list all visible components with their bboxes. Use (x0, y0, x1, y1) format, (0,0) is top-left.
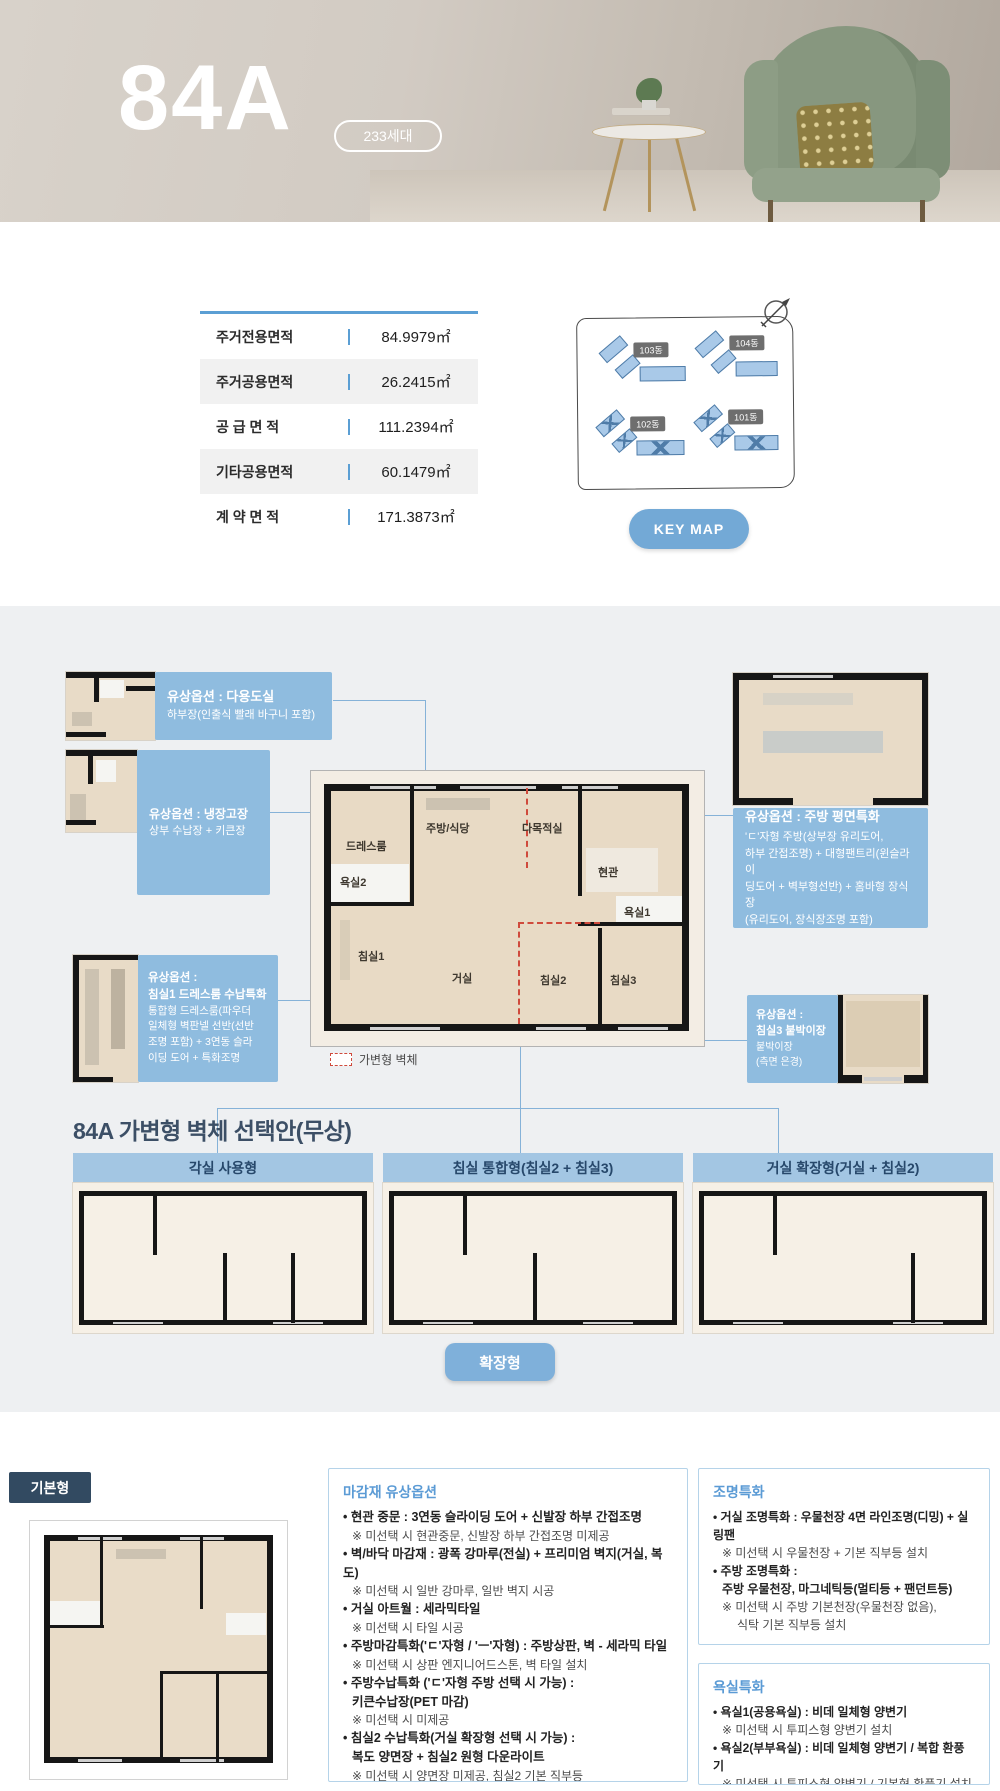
leader-line (703, 815, 733, 816)
table-leg (648, 136, 651, 212)
option-note: ※ 미선택 시 투피스형 양변기 설치 (713, 1721, 975, 1739)
leader-line (520, 1046, 521, 1108)
option-item: 벽/바닥 마감재 : 광폭 강마루(전실) + 프리미엄 벽지(거실, 복도) (343, 1545, 673, 1583)
dressroom-image (73, 955, 138, 1082)
utility-room-image (66, 672, 155, 740)
basic-type-floorplan (29, 1520, 288, 1780)
basic-type-badge: 기본형 (9, 1472, 91, 1503)
key-map-button[interactable]: KEY MAP (629, 509, 749, 549)
area-value: 26.2415㎡ (354, 371, 478, 392)
building-label: 103동 (633, 342, 668, 357)
divider (348, 329, 350, 345)
callout-utility-room: 유상옵션 : 다용도실 하부장(인출식 빨래 바구니 포함) (155, 672, 332, 740)
side-table-top (592, 124, 706, 140)
callout-line: 통합형 드레스룸(파우더 (148, 1004, 268, 1020)
callout-line: 이딩 도어 + 특화조명 (148, 1051, 268, 1067)
pattern-pillow (796, 102, 875, 177)
building-shape (709, 423, 735, 448)
callout-line: 일체형 벽판넬 선반(선반 (148, 1019, 268, 1035)
option-note: ※ 미선택 시 양면장 미제공, 침실2 기본 직부등 (343, 1767, 673, 1782)
divider (348, 374, 350, 390)
building-label: 104동 (729, 335, 764, 350)
kitchen-option-image (733, 673, 928, 805)
callout-line: 딩도어 + 벽부형선반) + 홈바형 장식장 (745, 879, 916, 912)
room-label-entry: 현관 (598, 864, 618, 880)
option-item: 복도 양면장 + 침실2 원형 다운라이트 (343, 1748, 673, 1767)
option-note: ※ 미선택 시 현관중문, 신발장 하부 간접조명 미제공 (343, 1527, 673, 1545)
area-label: 계 약 면 적 (200, 507, 344, 527)
variant-card-merged-bedrooms: 침실 통합형(침실2 + 침실3) (383, 1153, 683, 1333)
bed3-wardrobe-image (838, 995, 928, 1083)
leader-line (333, 700, 425, 701)
leader-line (703, 1040, 747, 1041)
option-note: ※ 미선택 시 미제공 (343, 1711, 673, 1729)
flexible-wall-mark (518, 922, 600, 924)
room-label-kitchen: 주방/식당 (426, 820, 470, 836)
building-cluster: 101동 (694, 409, 791, 462)
option-note: ※ 미선택 시 일반 강마루, 일반 벽지 시공 (343, 1582, 673, 1600)
option-item: 주방 우물천장, 마그네틱등(멀티등 + 팬던트등) (713, 1580, 975, 1598)
option-item: 욕실2(부부욕실) : 비데 일체형 양변기 / 복합 환풍기 (713, 1739, 975, 1775)
box-title: 조명특화 (713, 1482, 975, 1502)
box-title: 마감재 유상옵션 (343, 1482, 673, 1502)
callout-bed3-wardrobe: 유상옵션 : 침실3 붙박이장 붙박이장 (측면 은경) (747, 995, 838, 1083)
option-item: 키큰수납장(PET 마감) (343, 1693, 673, 1712)
leader-line (425, 700, 426, 772)
building-shape (736, 361, 778, 376)
option-item: 거실 조명특화 : 우물천장 4면 라인조명(디밍) + 실링팬 (713, 1508, 975, 1544)
divider (348, 464, 350, 480)
box-title: 욕실특화 (713, 1677, 975, 1697)
callout-title: 유상옵션 : 주방 평면특화 (745, 808, 916, 827)
callout-line: 하부 간접조명) + 대형팬트리(윈슬라이 (745, 846, 916, 879)
option-item: 욕실1(공용욕실) : 비데 일체형 양변기 (713, 1703, 975, 1721)
option-note: ※ 미선택 시 타일 시공 (343, 1619, 673, 1637)
legend-label: 가변형 벽체 (359, 1051, 418, 1068)
leader-line (520, 1108, 521, 1153)
callout-kitchen: 유상옵션 : 주방 평면특화 'ㄷ'자형 주방(상부장 유리도어, 하부 간접조… (733, 808, 928, 928)
building-shape (615, 354, 641, 379)
variant-card-header: 거실 확장형(거실 + 침실2) (693, 1153, 993, 1183)
expanded-type-button[interactable]: 확장형 (445, 1343, 555, 1381)
area-value: 111.2394㎡ (354, 416, 478, 437)
key-map: 103동 104동 102동 101동 (576, 316, 795, 490)
compass-icon (756, 292, 796, 332)
divider (348, 419, 350, 435)
finish-options-box: 마감재 유상옵션 현관 중문 : 3연동 슬라이딩 도어 + 신발장 하부 간접… (328, 1468, 688, 1782)
room-label-bed1: 침실1 (358, 948, 384, 964)
flexible-wall-legend: 가변형 벽체 (330, 1051, 418, 1068)
building-cluster: 104동 (695, 335, 792, 388)
callout-line: (유리도어, 장식장조명 포함) (745, 912, 916, 929)
fridge-cabinet-image (66, 750, 137, 832)
divider (348, 509, 350, 525)
variant-plan-image (693, 1183, 993, 1333)
chair-wing (916, 60, 950, 180)
table-row: 계 약 면 적 171.3873㎡ (200, 494, 478, 539)
area-label: 주거공용면적 (200, 372, 344, 392)
chair-leg (920, 200, 925, 222)
lighting-options-box: 조명특화 거실 조명특화 : 우물천장 4면 라인조명(디밍) + 실링팬 ※ … (698, 1468, 990, 1645)
option-item: 거실 아트월 : 세라믹타일 (343, 1600, 673, 1619)
variant-card-header: 각실 사용형 (73, 1153, 373, 1183)
variant-plan-image (73, 1183, 373, 1333)
room-label-bath2: 욕실2 (340, 874, 366, 890)
building-shape (599, 335, 629, 363)
area-label: 기타공용면적 (200, 462, 344, 482)
household-count-badge: 233세대 (334, 120, 442, 152)
leader-line (217, 1108, 778, 1109)
building-shape (636, 440, 684, 456)
table-row: 공 급 면 적 111.2394㎡ (200, 404, 478, 449)
option-note: ※ 미선택 시 상판 엔지니어드스톤, 벽 타일 설치 (343, 1656, 673, 1674)
callout-line: 조명 포함) + 3연동 슬라 (148, 1035, 268, 1051)
building-cluster: 102동 (596, 414, 693, 467)
callout-line: (측면 은경) (756, 1055, 829, 1070)
callout-title: 유상옵션 : 다용도실 (167, 688, 320, 707)
variant-plan-image (383, 1183, 683, 1333)
option-note: ※ 미선택 시 우물천장 + 기본 직부등 설치 (713, 1544, 975, 1562)
unit-type-title: 84A (118, 52, 293, 144)
building-shape (693, 404, 723, 432)
building-shape (695, 330, 725, 358)
entry-floor (586, 848, 658, 892)
room-label-multiroom: 다목적실 (522, 820, 562, 836)
table-row: 주거공용면적 26.2415㎡ (200, 359, 478, 404)
building-label: 102동 (630, 416, 665, 431)
callout-line: 붙박이장 (756, 1040, 829, 1055)
leader-line (778, 1108, 779, 1153)
table-row: 기타공용면적 60.1479㎡ (200, 449, 478, 494)
callout-line: 상부 수납장 + 키큰장 (149, 823, 258, 840)
option-note: ※ 미선택 시 주방 기본천장(우물천장 없음), (713, 1598, 975, 1616)
option-item: 침실2 수납특화(거실 확장형 선택 시 가능) : (343, 1729, 673, 1748)
area-label: 공 급 면 적 (200, 417, 344, 437)
page: 84A 233세대 주거전용면적 84.9979㎡ 주거공용면적 26.2415… (0, 0, 1000, 1791)
building-shape (640, 366, 686, 381)
variant-card-separate: 각실 사용형 (73, 1153, 373, 1333)
callout-line: 'ㄷ'자형 주방(상부장 유리도어, (745, 829, 916, 846)
callout-title: 침실3 붙박이장 (756, 1024, 829, 1040)
chair-leg (768, 200, 773, 222)
callout-dressroom: 유상옵션 : 침실1 드레스룸 수납특화 통합형 드레스룸(파우더 일체형 벽판… (138, 955, 278, 1082)
area-value: 171.3873㎡ (354, 506, 478, 527)
variant-card-header: 침실 통합형(침실2 + 침실3) (383, 1153, 683, 1183)
callout-title: 침실1 드레스룸 수납특화 (148, 987, 268, 1004)
hero-banner: 84A 233세대 (0, 0, 1000, 222)
callout-title: 유상옵션 : 냉장고장 (149, 806, 258, 823)
room-label-bath1: 욕실1 (624, 904, 650, 920)
area-value: 84.9979㎡ (354, 326, 478, 347)
building-label: 101동 (728, 409, 763, 424)
area-value: 60.1479㎡ (354, 461, 478, 482)
chair-wing (744, 60, 778, 180)
table-row: 주거전용면적 84.9979㎡ (200, 314, 478, 359)
callout-title: 유상옵션 : (148, 970, 268, 987)
bathroom-options-box: 욕실특화 욕실1(공용욕실) : 비데 일체형 양변기 ※ 미선택 시 투피스형… (698, 1663, 990, 1785)
books (612, 108, 670, 115)
option-item: 주방마감특화('ㄷ'자형 / 'ㅡ'자형) : 주방상판, 벽 - 세라믹 타일 (343, 1637, 673, 1656)
flexible-wall-mark (518, 922, 520, 1024)
callout-title: 유상옵션 : (756, 1008, 829, 1024)
room-label-living: 거실 (452, 970, 472, 986)
area-table: 주거전용면적 84.9979㎡ 주거공용면적 26.2415㎡ 공 급 면 적 … (200, 311, 478, 539)
building-cluster: 103동 (599, 340, 696, 393)
building-shape (611, 428, 637, 453)
variant-section-title: 84A 가변형 벽체 선택안(무상) (73, 1112, 351, 1146)
callout-line: 하부장(인출식 빨래 바구니 포함) (167, 707, 320, 724)
variant-card-extended-living: 거실 확장형(거실 + 침실2) (693, 1153, 993, 1333)
dashed-wall-icon (330, 1053, 352, 1066)
chair-seat (752, 168, 940, 202)
room-label-bed3: 침실3 (610, 972, 636, 988)
room-label-dressroom: 드레스룸 (346, 838, 386, 854)
building-shape (734, 435, 778, 450)
option-note: ※ 미선택 시 투피스형 양변기 / 기본형 환풍기 설치 (713, 1775, 975, 1785)
option-item: 주방 조명특화 : (713, 1562, 975, 1580)
callout-fridge-cabinet: 유상옵션 : 냉장고장 상부 수납장 + 키큰장 (137, 750, 270, 895)
room-label-bed2: 침실2 (540, 972, 566, 988)
option-item: 현관 중문 : 3연동 슬라이딩 도어 + 신발장 하부 간접조명 (343, 1508, 673, 1527)
plant-pot (642, 100, 656, 110)
building-shape (595, 409, 625, 437)
option-note: 식탁 기본 직부등 설치 (713, 1616, 975, 1634)
area-label: 주거전용면적 (200, 327, 344, 347)
building-shape (711, 349, 737, 374)
option-item: 주방수납특화 ('ㄷ'자형 주방 선택 시 가능) : (343, 1674, 673, 1693)
main-floorplan: 드레스룸 욕실2 침실1 주방/식당 다목적실 현관 욕실1 거실 침실2 침실… (310, 770, 703, 1045)
